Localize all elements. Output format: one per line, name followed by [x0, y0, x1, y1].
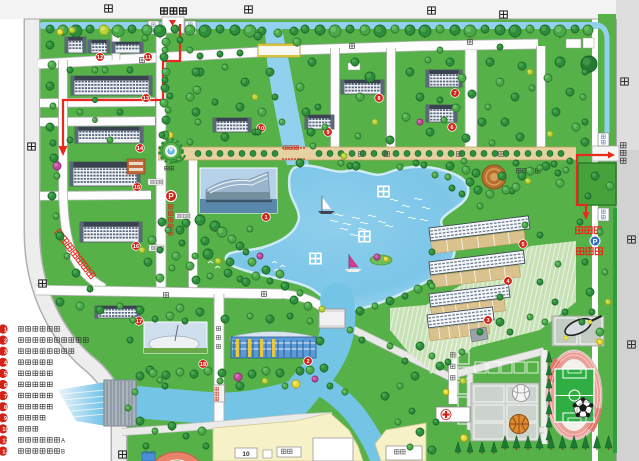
svg-text:11: 11 [2, 438, 9, 444]
svg-text:10: 10 [242, 451, 250, 458]
svg-text:11: 11 [145, 55, 151, 61]
svg-text:14: 14 [137, 146, 144, 152]
svg-text:7: 7 [4, 394, 7, 400]
svg-text:2: 2 [4, 338, 7, 344]
svg-text:13: 13 [143, 96, 149, 102]
svg-text:1: 1 [264, 215, 267, 221]
svg-text:2: 2 [306, 359, 309, 365]
svg-text:3: 3 [486, 318, 489, 324]
svg-text:8: 8 [377, 96, 380, 102]
svg-text:18: 18 [200, 362, 206, 368]
svg-text:12: 12 [2, 449, 8, 455]
svg-text:P: P [168, 192, 174, 201]
svg-text:7: 7 [453, 91, 456, 97]
svg-text:A: A [61, 439, 65, 445]
svg-text:10: 10 [2, 427, 8, 433]
svg-text:5: 5 [521, 242, 524, 248]
svg-text:P: P [592, 237, 597, 246]
svg-text:6: 6 [450, 125, 453, 131]
svg-text:15: 15 [134, 185, 140, 191]
svg-text:12: 12 [97, 55, 103, 61]
svg-text:17: 17 [136, 319, 142, 325]
svg-text:B: B [61, 450, 65, 456]
svg-text:16: 16 [133, 244, 139, 250]
svg-text:9: 9 [326, 130, 329, 136]
